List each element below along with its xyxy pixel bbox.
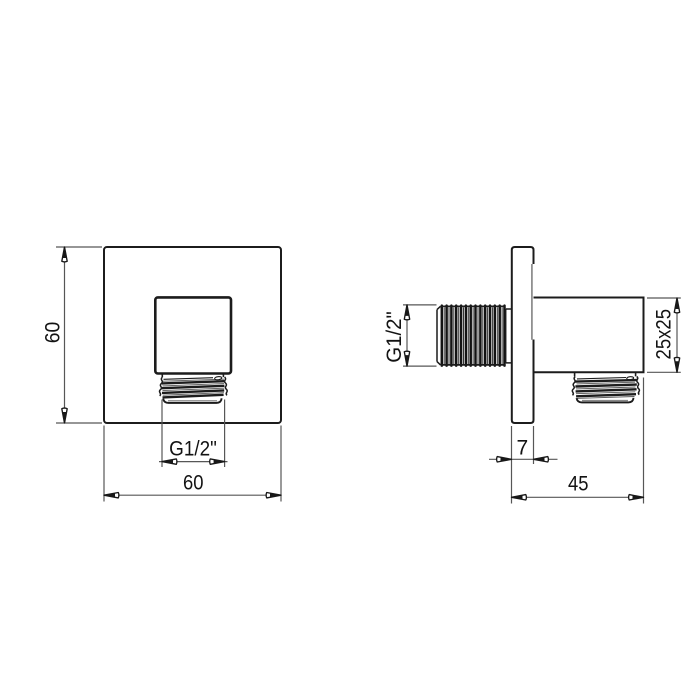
svg-text:7: 7 <box>516 436 528 459</box>
svg-text:60: 60 <box>183 472 204 495</box>
svg-text:45: 45 <box>568 472 589 495</box>
svg-text:60: 60 <box>42 322 65 344</box>
svg-text:G1/2": G1/2" <box>169 438 217 461</box>
svg-text:25x25: 25x25 <box>652 309 675 360</box>
svg-text:G1/2": G1/2" <box>383 311 406 363</box>
